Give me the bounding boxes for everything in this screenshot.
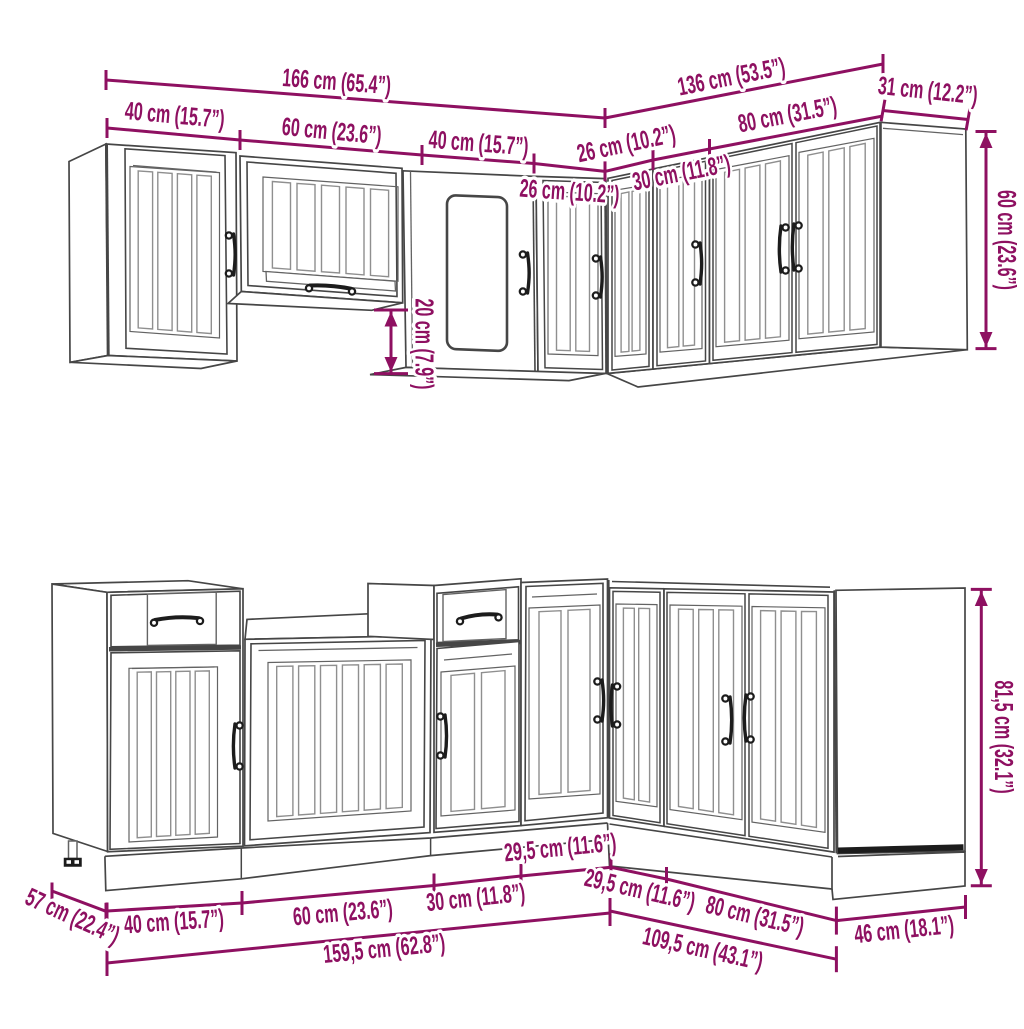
svg-text:60 cm (23.6”): 60 cm (23.6”) <box>992 190 1021 290</box>
svg-text:20 cm (7.9”): 20 cm (7.9”) <box>410 298 439 389</box>
svg-text:81,5 cm (32.1”): 81,5 cm (32.1”) <box>989 680 1018 793</box>
